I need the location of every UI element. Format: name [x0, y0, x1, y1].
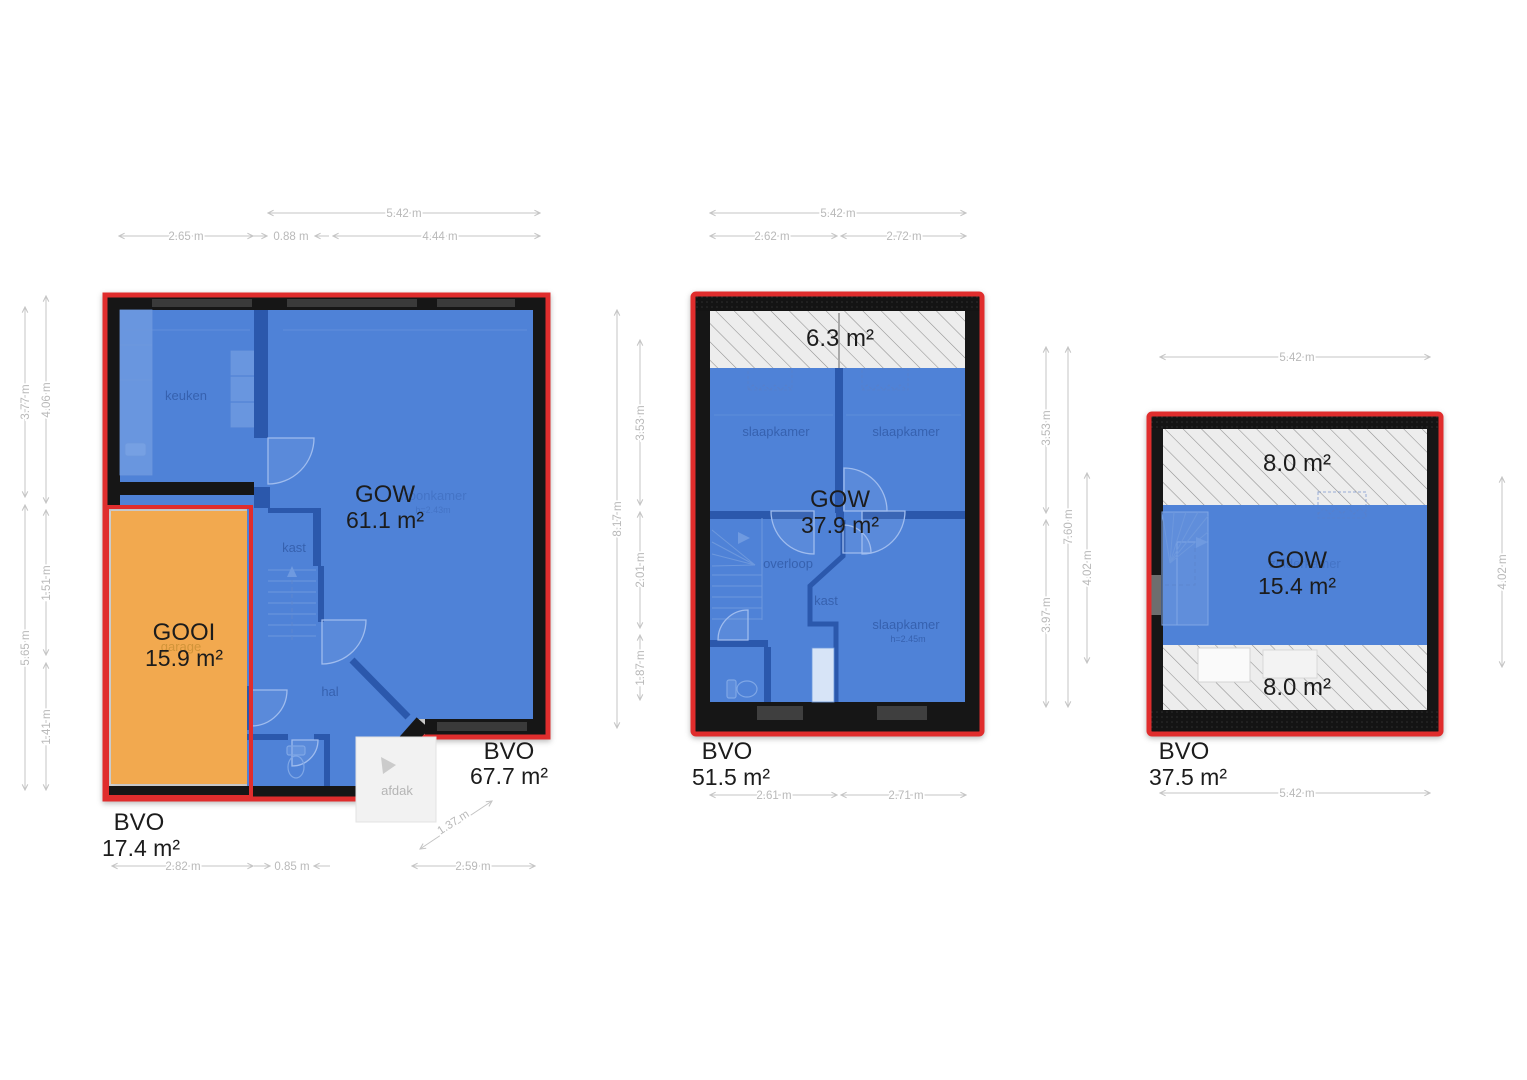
dim-label: 5.42 m	[386, 208, 421, 220]
room-label-kast: kast	[814, 593, 838, 608]
window-wall	[695, 296, 980, 311]
bvo-value: 51.5 m²	[692, 764, 770, 790]
attic-bottom-area-value: 8.0 m²	[1263, 674, 1331, 701]
dim-label: 4.44 m	[422, 231, 457, 243]
dim-label: 2.71 m	[888, 790, 923, 802]
window-wall	[1151, 416, 1439, 429]
window	[287, 299, 417, 307]
dim-label: 4.02 m	[1497, 554, 1509, 589]
dim-label: 5.42 m	[1279, 788, 1314, 800]
dim-label: 2.59 m	[455, 861, 490, 873]
gow-area-value: 15.4 m²	[1258, 573, 1336, 599]
dim-label: 5.42 m	[820, 208, 855, 220]
window	[437, 722, 527, 731]
dim-label: 4.02 m	[1082, 550, 1094, 585]
dim-label: 4.06 m	[41, 382, 53, 417]
floor1-plan	[105, 295, 548, 799]
attic-top-area-value: 8.0 m²	[1263, 450, 1331, 477]
gow-area-label: GOW	[810, 486, 870, 513]
room-label-kast: kast	[282, 540, 306, 555]
wall-notch	[1151, 575, 1161, 615]
gooi-area-value: 15.9 m²	[145, 645, 223, 671]
dim-label: 2.82 m	[165, 861, 200, 873]
interior-wall	[254, 310, 268, 438]
dim-label: 3.53 m	[635, 405, 647, 440]
dim-label: 1.87 m	[635, 650, 647, 685]
gooi-area-label: GOOI	[153, 619, 216, 646]
gow-area-value: 61.1 m²	[346, 507, 424, 533]
bvo-label: BVO	[1159, 738, 1210, 765]
afdak-canopy: afdak	[356, 737, 436, 822]
dim-label: 1.41 m	[41, 709, 53, 744]
floorplan-image: afdak keuken kast hal woonkamer h=2.43m …	[0, 0, 1527, 1080]
dim-label: 7.60 m	[1063, 509, 1075, 544]
room-height-label: h=2.45m	[890, 634, 925, 644]
dim-label: 8.17 m	[612, 501, 624, 536]
dim-label: 2.65 m	[168, 231, 203, 243]
gow-area-label: GOW	[1267, 547, 1327, 574]
dim-label: 3.77 m	[20, 384, 32, 419]
floorplan-page: afdak keuken kast hal woonkamer h=2.43m …	[0, 0, 1527, 1080]
afdak-label: afdak	[381, 783, 413, 798]
attic-area-value: 6.3 m²	[806, 325, 874, 352]
window	[877, 706, 927, 720]
room-label-slaapkamer: slaapkamer	[742, 424, 810, 439]
dim-label: 2.61 m	[756, 790, 791, 802]
room-label-slaapkamer: slaapkamer	[872, 424, 940, 439]
stairs-icon	[1162, 512, 1208, 625]
bvo-main-value: 67.7 m²	[470, 763, 548, 789]
gow-area-value: 37.9 m²	[801, 512, 879, 538]
dim-label: 0.88 m	[273, 231, 308, 243]
shower-icon	[812, 648, 834, 702]
bvo-value: 37.5 m²	[1149, 764, 1227, 790]
dim-label: 3.53 m	[1041, 410, 1053, 445]
bvo-garage-label: BVO	[114, 809, 165, 836]
room-label-keuken: keuken	[165, 388, 207, 403]
dim-label: 2.72 m	[886, 231, 921, 243]
dim-label: 5.65 m	[20, 630, 32, 665]
skylight-icon	[1198, 648, 1250, 682]
window	[757, 706, 803, 720]
window-wall	[1151, 710, 1439, 732]
dim-label: 0.85 m	[274, 861, 309, 873]
bvo-garage-value: 17.4 m²	[102, 835, 180, 861]
dim-label: 1.51 m	[41, 565, 53, 600]
room-label-overloop: overloop	[763, 556, 813, 571]
dim-label: 5.42 m	[1279, 352, 1314, 364]
room-label-slaapkamer: slaapkamer	[872, 617, 940, 632]
window	[152, 299, 252, 307]
bvo-label: BVO	[702, 738, 753, 765]
dim-label: 3.97 m	[1041, 597, 1053, 632]
dim-label: 2.62 m	[754, 231, 789, 243]
dim-label: 2.01 m	[635, 552, 647, 587]
bvo-main-label: BVO	[484, 738, 535, 765]
room-label-hal: hal	[321, 684, 338, 699]
window	[437, 299, 515, 307]
gow-area-label: GOW	[355, 481, 415, 508]
